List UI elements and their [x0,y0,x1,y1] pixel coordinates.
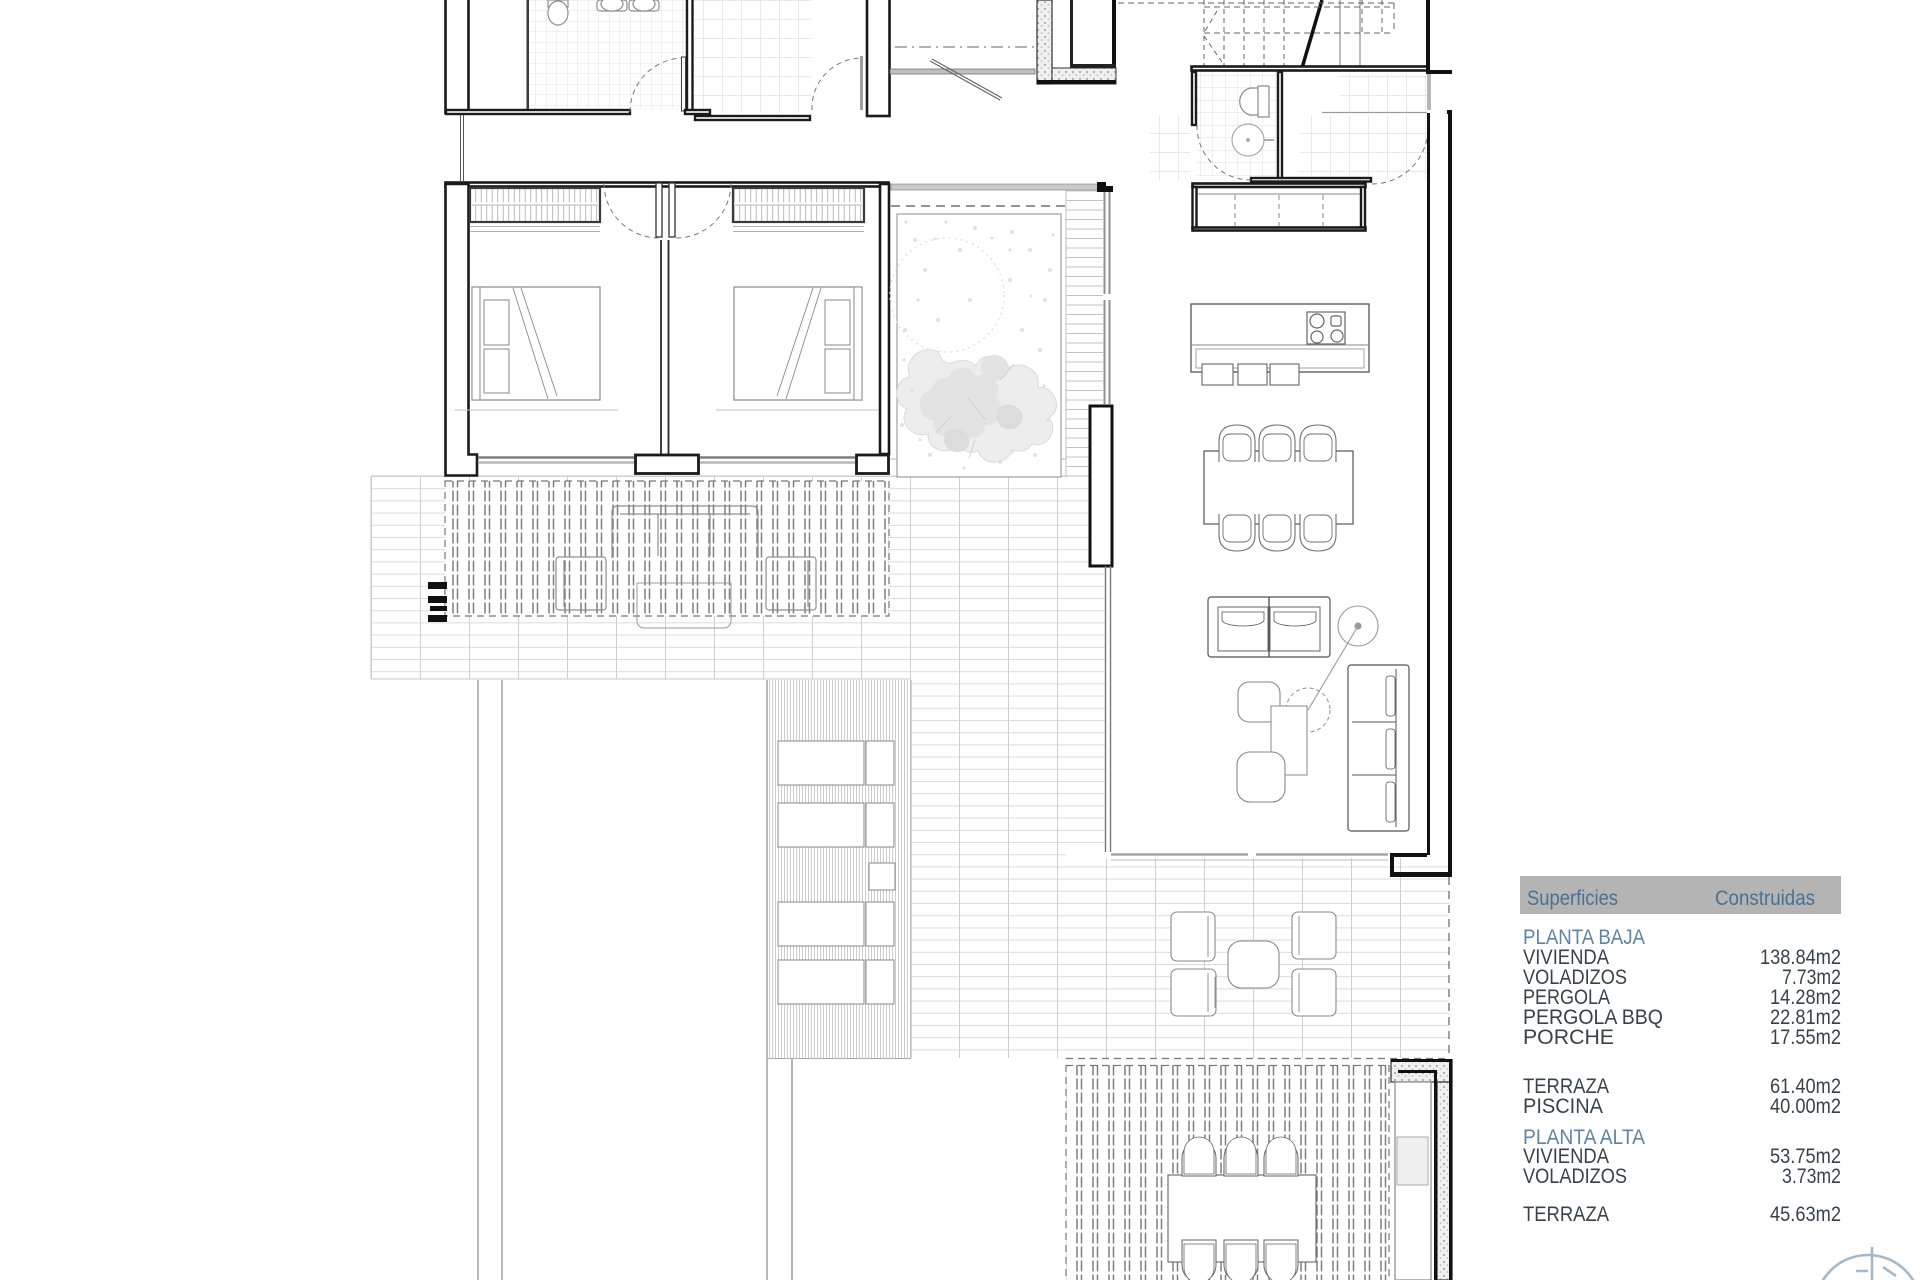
svg-text:Construidas: Construidas [1715,886,1815,910]
svg-text:VOLADIZOS: VOLADIZOS [1523,1165,1627,1188]
svg-text:3.73m2: 3.73m2 [1782,1165,1841,1188]
svg-text:TERRAZA: TERRAZA [1523,1203,1609,1226]
svg-text:45.63m2: 45.63m2 [1770,1203,1841,1226]
svg-text:PISCINA: PISCINA [1523,1095,1603,1118]
svg-text:40.00m2: 40.00m2 [1770,1095,1841,1118]
svg-text:Superficies: Superficies [1527,886,1618,910]
svg-text:PORCHE: PORCHE [1523,1026,1614,1049]
svg-text:17.55m2: 17.55m2 [1770,1026,1841,1049]
